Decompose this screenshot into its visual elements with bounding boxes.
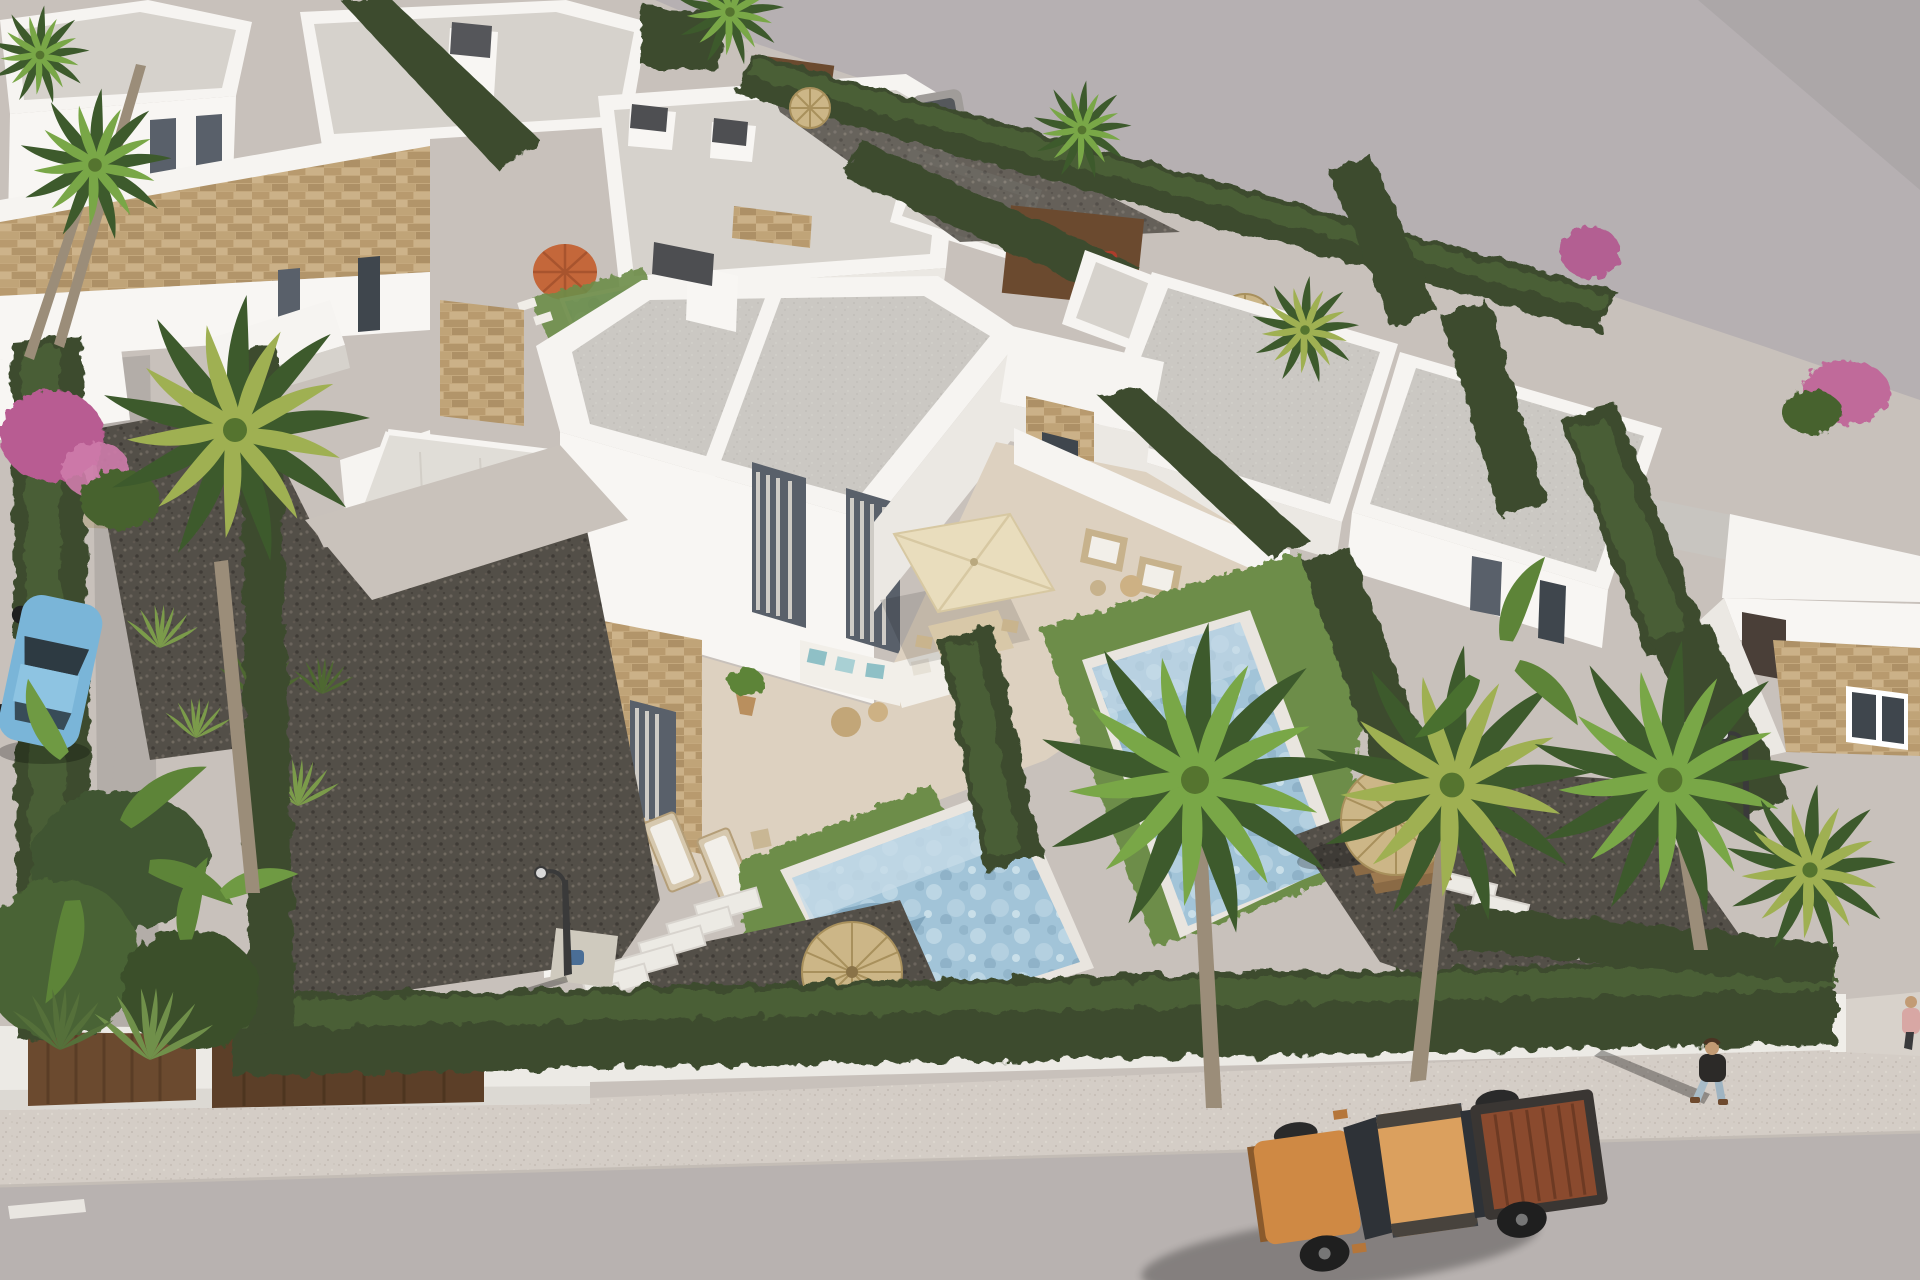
aerial-render-svg [0, 0, 1920, 1280]
stone-band-upper [440, 300, 524, 426]
bougainvillea [1560, 226, 1620, 278]
render-image [0, 0, 1920, 1280]
straw-parasol [790, 88, 830, 128]
window [752, 462, 806, 628]
bougainvillea-foliage [1782, 390, 1842, 434]
